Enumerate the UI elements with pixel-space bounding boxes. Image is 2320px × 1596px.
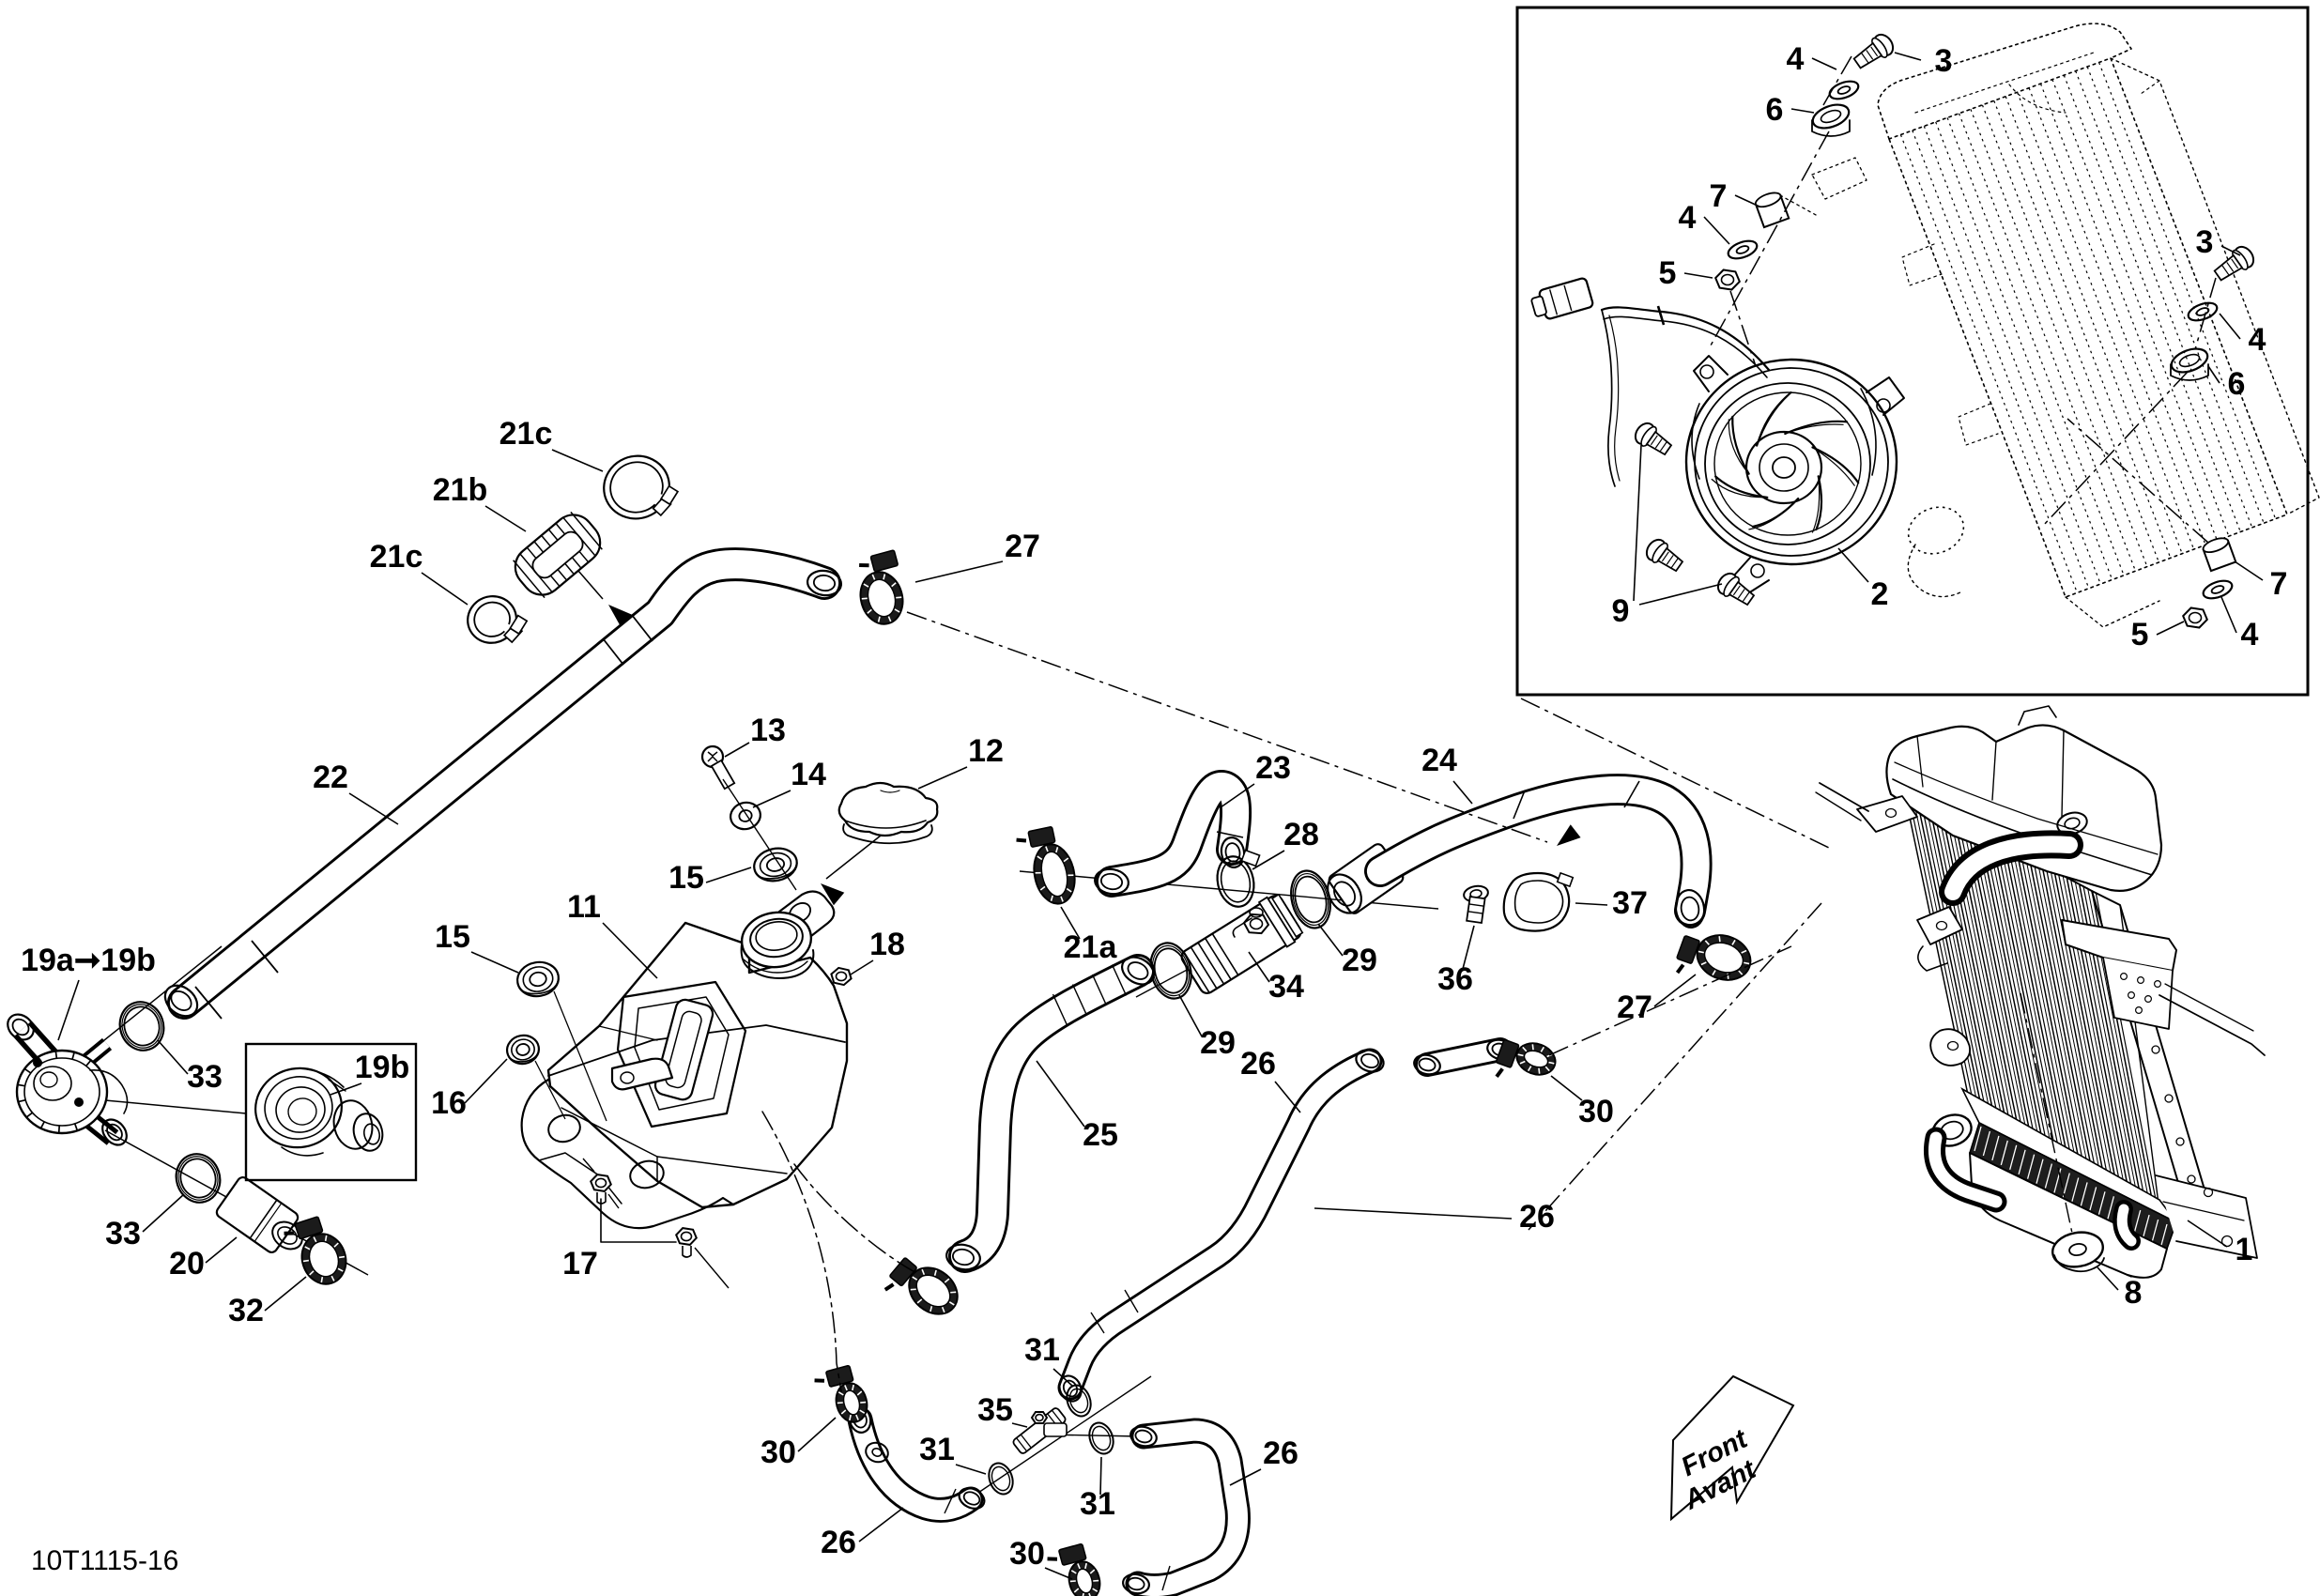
- svg-text:7: 7: [2270, 566, 2288, 602]
- svg-text:31: 31: [1080, 1486, 1115, 1522]
- svg-text:13: 13: [750, 713, 786, 748]
- svg-text:9: 9: [1612, 593, 1630, 629]
- svg-text:35: 35: [977, 1392, 1013, 1428]
- svg-text:26: 26: [1519, 1199, 1555, 1235]
- svg-text:25: 25: [1083, 1117, 1118, 1153]
- svg-text:3: 3: [2196, 224, 2214, 260]
- svg-text:18: 18: [869, 927, 905, 962]
- svg-text:33: 33: [105, 1216, 141, 1251]
- svg-text:6: 6: [2228, 366, 2246, 402]
- svg-text:33: 33: [187, 1059, 223, 1095]
- svg-text:37: 37: [1612, 885, 1648, 921]
- svg-text:29: 29: [1342, 943, 1377, 978]
- svg-text:8: 8: [2125, 1275, 2143, 1311]
- svg-text:7: 7: [1710, 178, 1728, 214]
- svg-text:21b: 21b: [433, 472, 488, 508]
- svg-text:4: 4: [2241, 617, 2259, 652]
- svg-text:4: 4: [2249, 322, 2266, 358]
- svg-text:29: 29: [1200, 1025, 1236, 1061]
- svg-text:30: 30: [1009, 1536, 1045, 1572]
- svg-text:15: 15: [435, 919, 470, 955]
- svg-text:6: 6: [1766, 92, 1784, 128]
- svg-text:4: 4: [1679, 200, 1697, 236]
- svg-text:4: 4: [1787, 41, 1805, 77]
- svg-text:17: 17: [562, 1246, 598, 1281]
- svg-text:21a: 21a: [1064, 929, 1118, 965]
- svg-text:27: 27: [1005, 529, 1040, 564]
- svg-text:30: 30: [761, 1435, 796, 1470]
- svg-text:22: 22: [313, 760, 348, 795]
- svg-text:5: 5: [2131, 617, 2149, 652]
- svg-text:1: 1: [2235, 1232, 2253, 1267]
- svg-text:21c: 21c: [499, 416, 553, 452]
- svg-text:21c: 21c: [370, 539, 423, 575]
- svg-text:20: 20: [169, 1246, 205, 1281]
- svg-text:3: 3: [1935, 43, 1953, 79]
- svg-text:15: 15: [668, 860, 704, 896]
- svg-text:2: 2: [1871, 576, 1889, 612]
- svg-text:11: 11: [567, 889, 601, 925]
- svg-text:27: 27: [1617, 990, 1652, 1025]
- svg-text:19a➞19b: 19a➞19b: [21, 943, 156, 978]
- svg-text:30: 30: [1578, 1094, 1614, 1129]
- svg-text:36: 36: [1437, 961, 1473, 997]
- svg-text:12: 12: [968, 733, 1004, 769]
- svg-text:10T1115-16: 10T1115-16: [31, 1545, 178, 1576]
- svg-text:32: 32: [228, 1293, 264, 1328]
- svg-text:24: 24: [1421, 743, 1457, 778]
- svg-text:5: 5: [1659, 255, 1677, 291]
- svg-text:31: 31: [1024, 1332, 1060, 1368]
- svg-text:26: 26: [1263, 1435, 1298, 1471]
- svg-text:26: 26: [821, 1525, 856, 1560]
- svg-text:26: 26: [1240, 1046, 1276, 1082]
- svg-text:16: 16: [431, 1085, 467, 1121]
- svg-text:14: 14: [791, 757, 826, 792]
- svg-text:19b: 19b: [355, 1050, 410, 1085]
- svg-text:34: 34: [1268, 969, 1304, 1005]
- svg-text:31: 31: [919, 1432, 955, 1467]
- svg-text:28: 28: [1283, 817, 1319, 852]
- svg-text:23: 23: [1255, 750, 1291, 786]
